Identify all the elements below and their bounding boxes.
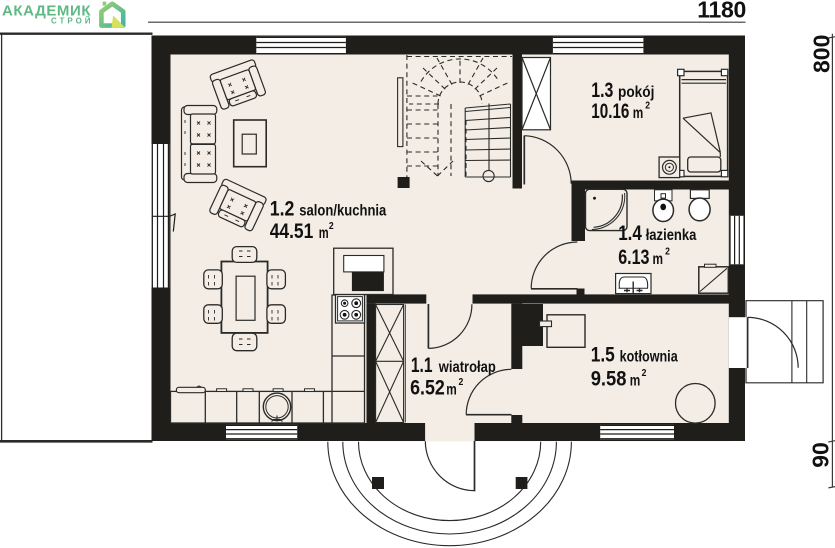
svg-text:m: m — [319, 225, 329, 242]
svg-text:1.3: 1.3 — [591, 79, 613, 102]
svg-text:wiatrołap: wiatrołap — [438, 359, 496, 376]
svg-text:1.5: 1.5 — [591, 344, 615, 367]
svg-text:pokój: pokój — [618, 84, 654, 101]
svg-text:9.58: 9.58 — [591, 368, 627, 391]
svg-text:salon/kuchnia: salon/kuchnia — [299, 203, 386, 220]
svg-text:1.2: 1.2 — [270, 198, 295, 221]
svg-text:2: 2 — [329, 220, 334, 232]
svg-text:2: 2 — [665, 246, 670, 258]
svg-text:1.1: 1.1 — [411, 354, 433, 377]
svg-text:m: m — [633, 105, 644, 122]
svg-text:6.52: 6.52 — [410, 376, 445, 399]
svg-text:m: m — [653, 251, 664, 268]
svg-text:1.4: 1.4 — [618, 222, 642, 245]
svg-text:800: 800 — [809, 35, 835, 73]
svg-text:6.13: 6.13 — [618, 246, 649, 269]
svg-text:2: 2 — [459, 376, 464, 388]
svg-text:m: m — [630, 373, 641, 390]
svg-text:m: m — [446, 381, 457, 398]
svg-text:kotłownia: kotłownia — [620, 349, 678, 366]
svg-text:2: 2 — [642, 367, 647, 379]
svg-text:1180: 1180 — [697, 0, 746, 23]
svg-text:90: 90 — [808, 442, 834, 468]
svg-text:łazienka: łazienka — [646, 227, 697, 244]
svg-text:44.51: 44.51 — [270, 220, 314, 243]
svg-text:10.16: 10.16 — [591, 100, 629, 123]
svg-text:2: 2 — [645, 99, 650, 111]
